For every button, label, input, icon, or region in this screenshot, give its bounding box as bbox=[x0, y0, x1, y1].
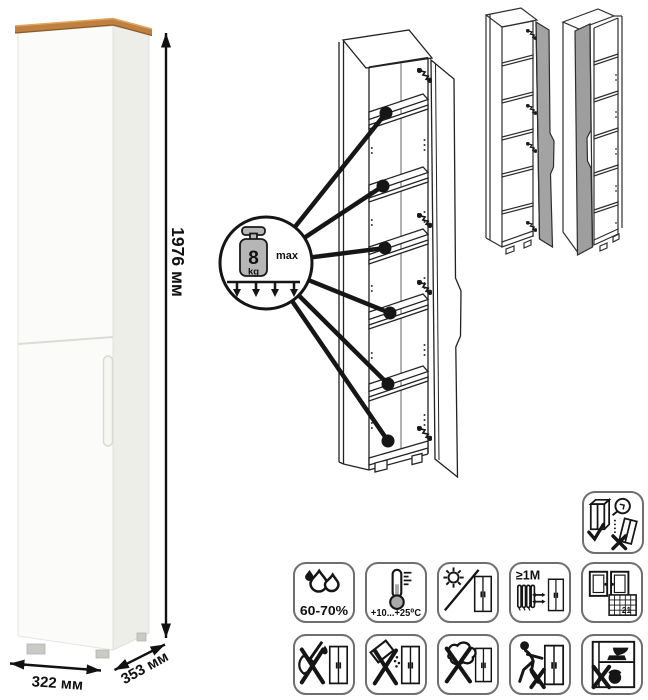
no-wet-sponge-icon bbox=[437, 634, 499, 695]
no-sharp-impact-icon bbox=[293, 634, 355, 695]
distance-label: ≥1М bbox=[516, 568, 540, 582]
width-arrow bbox=[10, 664, 101, 671]
kettlebell-glyph bbox=[609, 671, 622, 684]
cabinet-side-panel bbox=[113, 26, 149, 650]
temperature-icon: +10...+25⁰C bbox=[365, 562, 427, 623]
foot bbox=[524, 240, 531, 248]
product-infographic: 1976 мм 322 мм 353 мм bbox=[0, 0, 648, 700]
no-dragging-icon bbox=[509, 634, 571, 695]
window-glyph bbox=[590, 572, 629, 596]
x-mark bbox=[531, 670, 544, 687]
calendar-day: 21 bbox=[622, 606, 632, 615]
hinge-icon bbox=[526, 221, 537, 231]
foot bbox=[506, 246, 514, 254]
radiator-distance-icon: ≥1М bbox=[509, 562, 571, 623]
ventilation-calendar-icon: 21 bbox=[581, 562, 643, 623]
hinge-icon bbox=[417, 213, 432, 227]
shelves bbox=[594, 54, 618, 213]
cabinet-glyph bbox=[548, 579, 563, 610]
shelf-pin-holes bbox=[615, 74, 617, 224]
cabinet-glyph bbox=[476, 648, 492, 681]
load-capacity-badge: 8 kg max bbox=[220, 217, 312, 309]
no-abrasive-powder-icon bbox=[365, 634, 427, 695]
no-direct-sunlight-icon bbox=[437, 562, 499, 623]
hinge-icon bbox=[526, 142, 537, 152]
width-dimension: 322 мм bbox=[10, 664, 101, 694]
sun-icon bbox=[443, 567, 463, 587]
foot bbox=[412, 454, 422, 465]
product-cabinet bbox=[15, 19, 152, 659]
cabinet-glyph bbox=[545, 646, 563, 685]
hinge-icon bbox=[526, 104, 537, 114]
slash bbox=[445, 570, 479, 611]
humidity-icon: 60-70% bbox=[293, 562, 355, 623]
shelves bbox=[369, 94, 428, 465]
x-mark bbox=[594, 667, 609, 687]
load-qualifier: max bbox=[276, 250, 299, 262]
cabinet-glyph bbox=[475, 576, 492, 611]
temperature-label: +10...+25⁰C bbox=[371, 608, 422, 619]
depth-dimension: 353 мм bbox=[115, 645, 172, 688]
humidity-label: 60-70% bbox=[300, 604, 348, 618]
radiator-glyph bbox=[518, 585, 535, 610]
top-board bbox=[343, 30, 432, 68]
hinge-icon bbox=[417, 68, 432, 82]
cabinet-glyph bbox=[330, 647, 348, 684]
cabinet-glyph bbox=[402, 647, 420, 684]
anchor-to-wall-warning-icon bbox=[582, 491, 644, 554]
door-handle-groove bbox=[104, 356, 113, 446]
open-door bbox=[431, 60, 461, 477]
anvil-glyph bbox=[607, 648, 628, 661]
door-variant-left-hinged bbox=[563, 9, 622, 255]
shelf bbox=[369, 229, 428, 264]
height-label: 1976 мм bbox=[168, 227, 188, 297]
foot bbox=[600, 243, 607, 251]
shelves bbox=[502, 55, 533, 214]
height-dimension: 1976 мм bbox=[166, 33, 188, 638]
no-overload-icon bbox=[581, 634, 643, 695]
width-label: 322 мм bbox=[31, 673, 83, 694]
hinge-icon bbox=[526, 29, 537, 39]
shelf bbox=[369, 294, 428, 329]
x-mark bbox=[447, 649, 470, 682]
load-unit: kg bbox=[248, 267, 259, 278]
hinge-icon bbox=[417, 426, 432, 440]
x-mark bbox=[375, 651, 396, 684]
door-variant-right-hinged bbox=[486, 8, 554, 254]
calendar-glyph: 21 bbox=[609, 595, 636, 615]
